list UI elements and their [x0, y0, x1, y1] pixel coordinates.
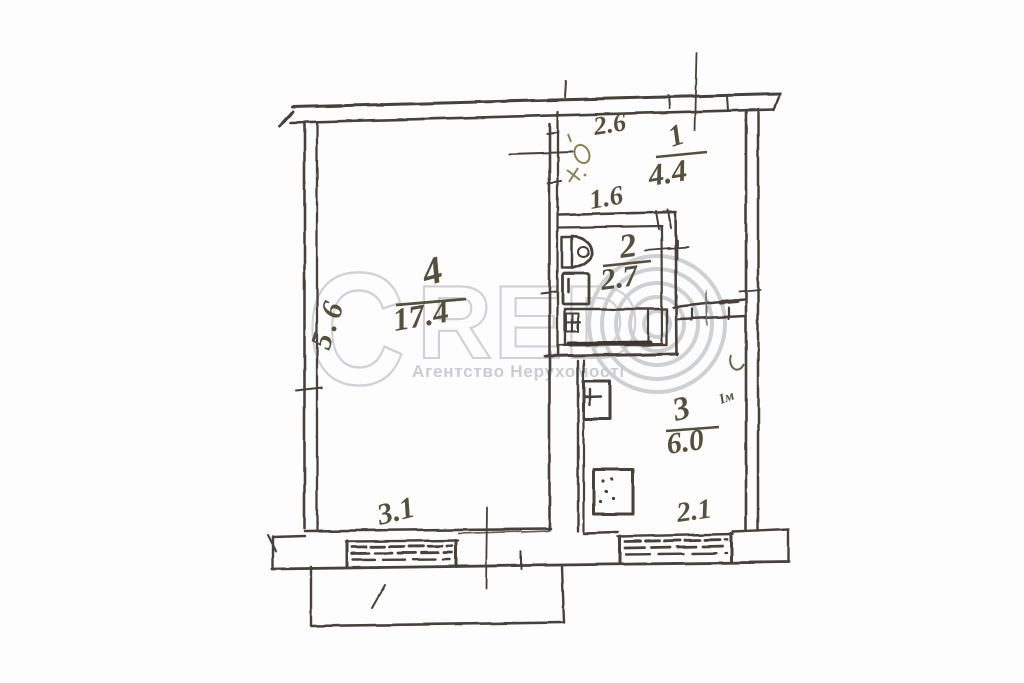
svg-text:6.0: 6.0 — [664, 423, 706, 461]
svg-text:2.7: 2.7 — [597, 259, 641, 297]
svg-text:4.4: 4.4 — [645, 152, 690, 193]
svg-text:2.1: 2.1 — [674, 493, 714, 529]
svg-text:2.6: 2.6 — [590, 107, 628, 141]
svg-text:1.6: 1.6 — [587, 179, 626, 214]
svg-text:Агентство Нерухомості: Агентство Нерухомості — [412, 362, 625, 381]
